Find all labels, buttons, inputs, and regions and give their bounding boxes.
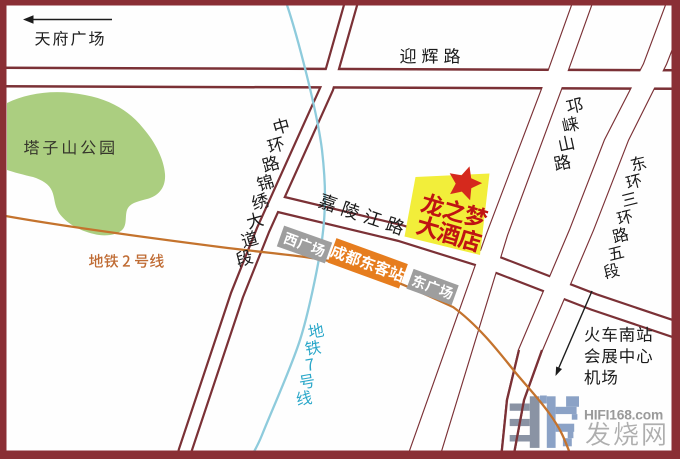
svg-text:HIFI168.com: HIFI168.com [584,408,663,423]
